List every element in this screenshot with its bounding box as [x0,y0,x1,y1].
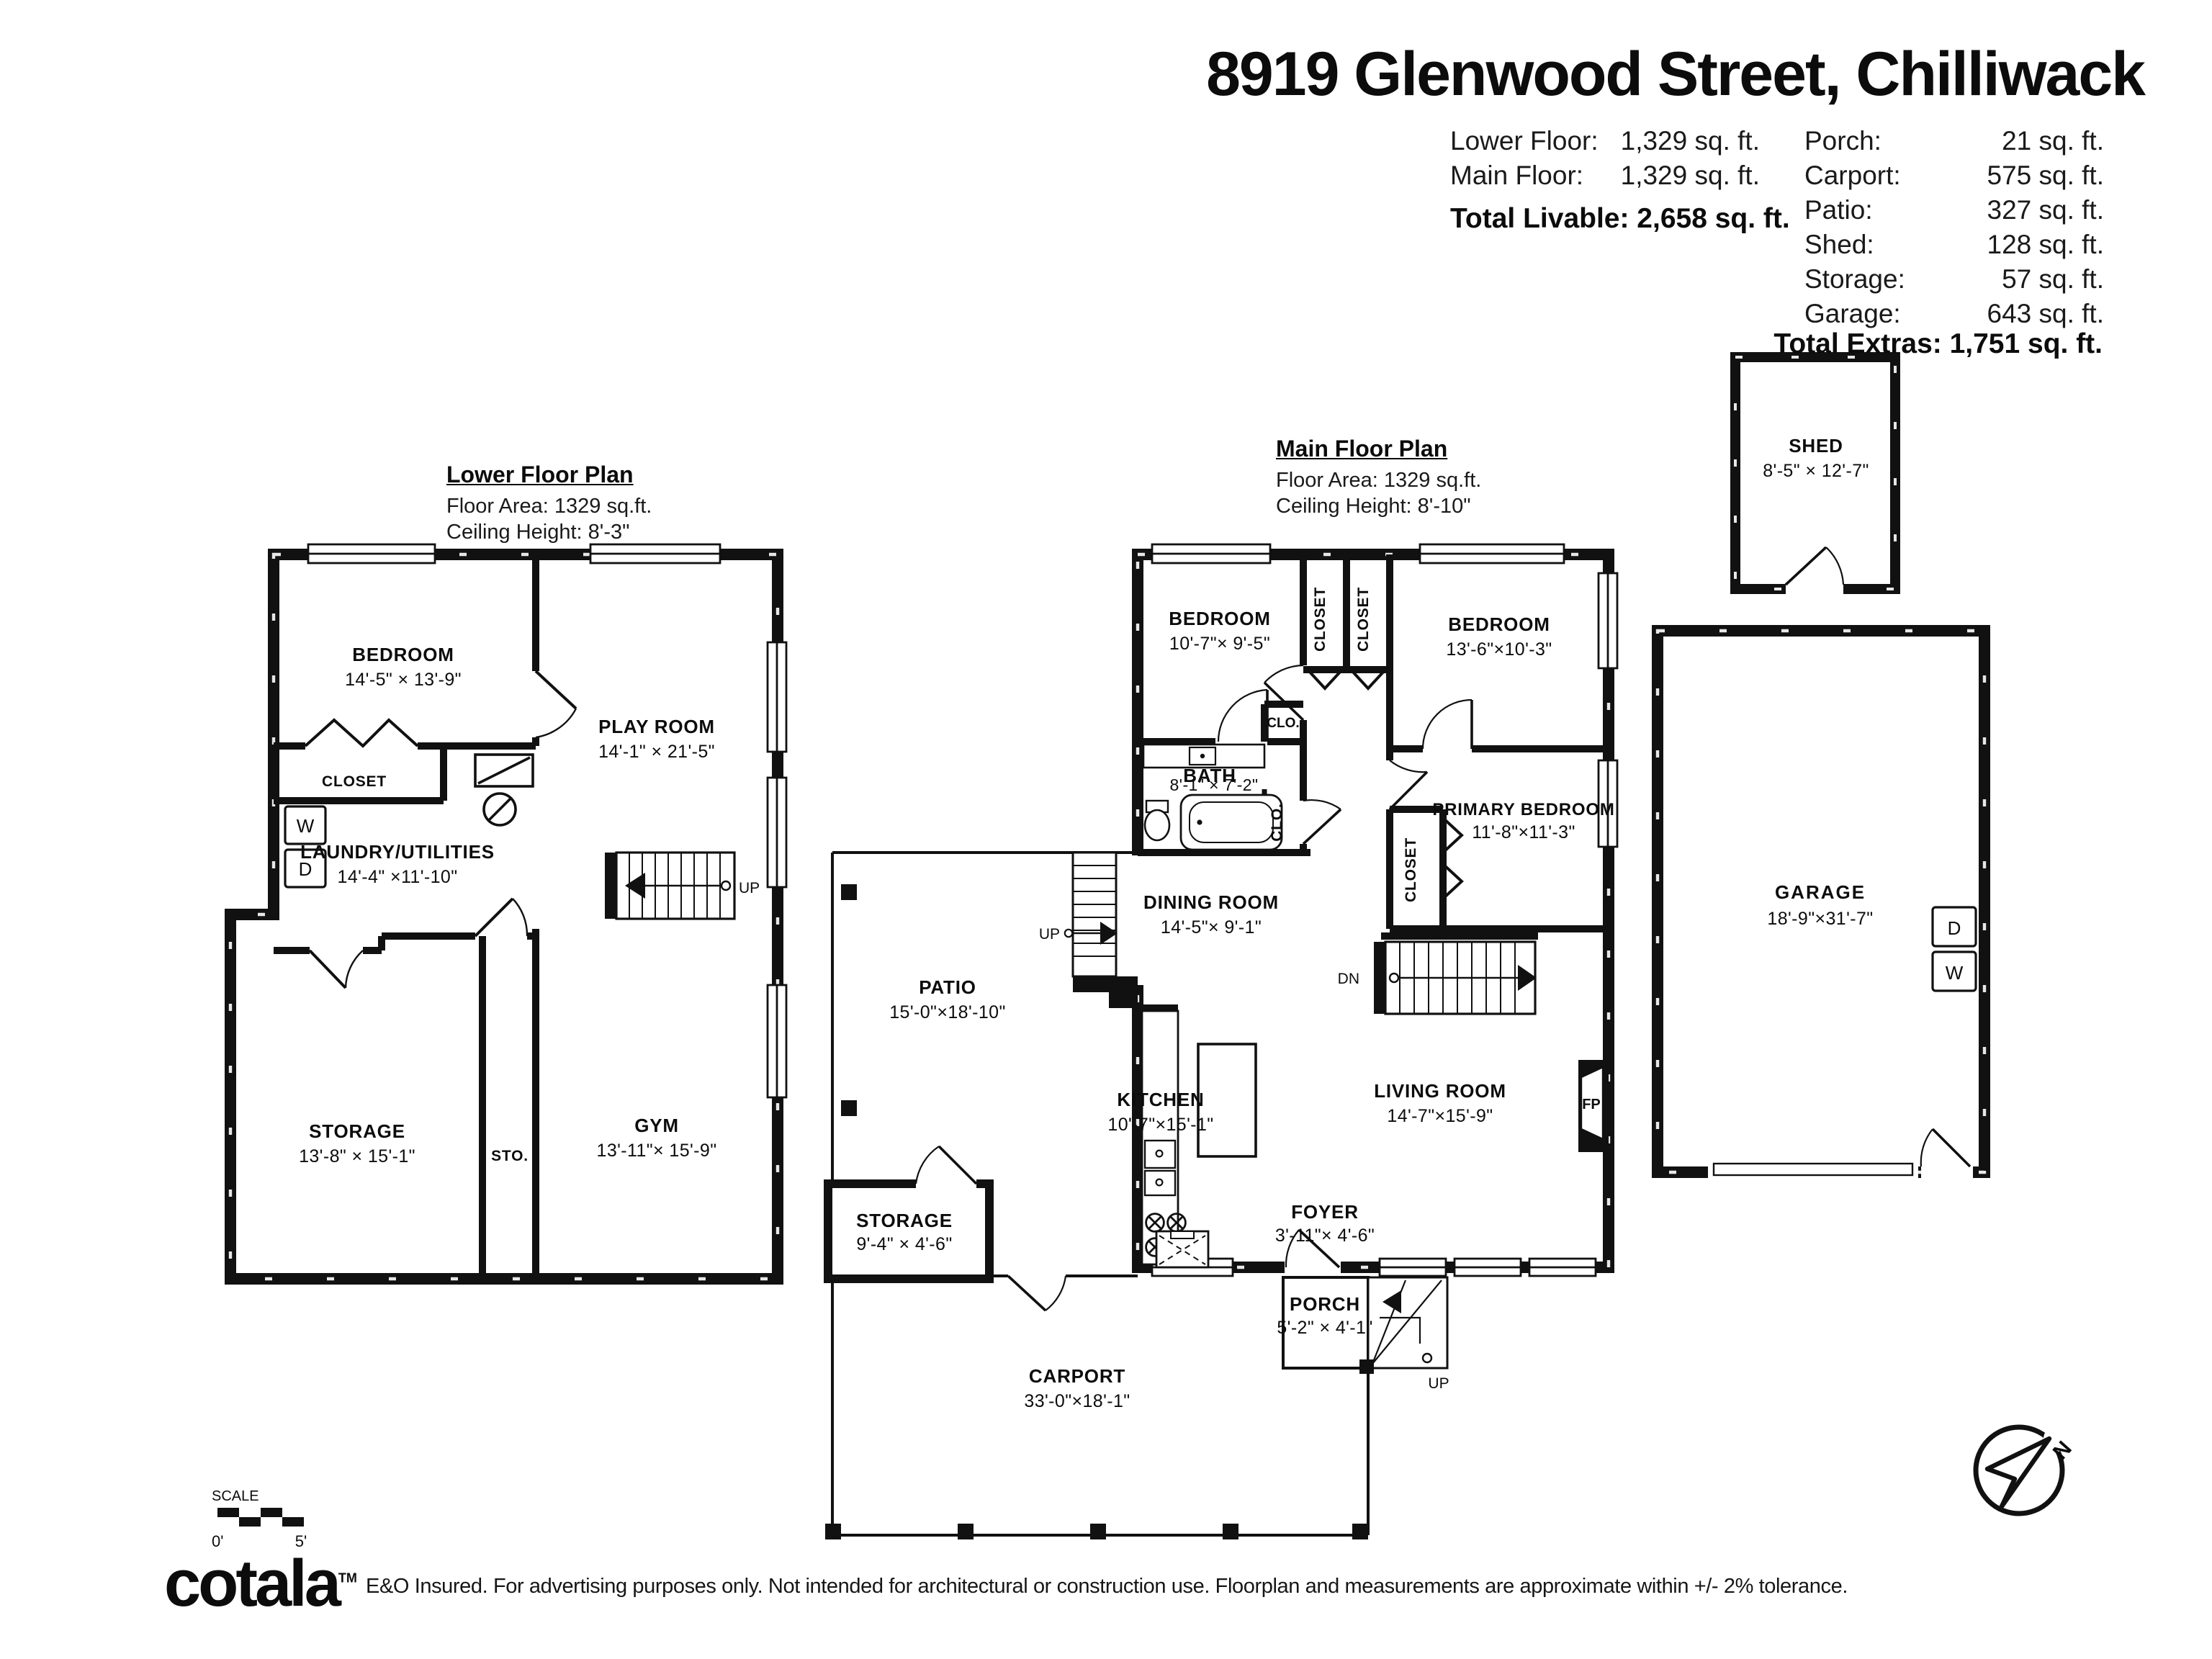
scale-bar: SCALE 0' 5' [212,1488,307,1550]
lower-laundry-label: LAUNDRY/UTILITIES [300,841,495,863]
water-heater-icon [484,793,516,825]
shed-label: SHED [1789,435,1843,457]
stat-row: Patio: 327 sq. ft. [1804,193,2104,228]
main-foyer-dims: 3'-11"× 4'-6" [1275,1226,1375,1246]
stat-value: 575 sq. ft. [1987,158,2105,193]
garage-plan: D W GARAGE 18'-9"×31'-7" [1658,631,1984,1181]
extras-stats: Porch: 21 sq. ft. Carport: 575 sq. ft. P… [1804,124,2104,331]
garage-label: GARAGE [1775,881,1866,903]
main-dining-dims: 14'-5"× 9'-1" [1161,917,1262,938]
stat-label: Porch: [1804,124,1881,158]
lower-bedroom-label: BEDROOM [352,644,454,665]
lower-bedroom-dims: 14'-5" × 13'-9" [345,670,462,690]
washer-label: W [297,815,315,837]
stat-label: Patio: [1804,193,1873,228]
main-bedroom2-dims: 13'-6"×10'-3" [1446,639,1552,660]
livable-stats: Lower Floor: 1,329 sq. ft. Main Floor: 1… [1450,124,1760,193]
main-bedroom2-label: BEDROOM [1448,613,1550,635]
lower-up-label: UP [739,880,760,896]
stat-value: 1,329 sq. ft. [1621,124,1760,158]
lower-gym-label: GYM [634,1115,679,1136]
lower-plan-ceiling: Ceiling Height: 8'-3" [446,520,652,546]
stat-value: 643 sq. ft. [1987,297,2105,331]
lower-plan: BEDROOM 14'-5" × 13'-9" PLAY ROOM 14'-1"… [230,544,786,1279]
main-up-patio-label: UP [1039,926,1060,943]
main-bath-dims2: 8'-1" × 7'-2" [1169,775,1258,794]
lower-stairs [605,853,734,919]
stat-row: Storage: 57 sq. ft. [1804,262,2104,297]
stat-label: Lower Floor: [1450,124,1599,158]
lower-laundry-dims: 14'-4" ×11'-10" [338,867,458,887]
main-primary-label: PRIMARY BEDROOM [1432,800,1614,819]
compass-icon: N [1976,1426,2077,1514]
main-dining-label: DINING ROOM [1143,891,1279,913]
stat-row: Porch: 21 sq. ft. [1804,124,2104,158]
main-patio-dims: 15'-0"×18'-10" [889,1002,1005,1022]
total-livable: Total Livable: 2,658 sq. ft. [1450,203,1790,236]
main-living-dims: 14'-7"×15'-9" [1387,1106,1493,1126]
stat-value: 128 sq. ft. [1987,228,2105,262]
main-porch-label: PORCH [1290,1293,1360,1315]
main-clo2-label: CLO. [1269,803,1285,841]
lower-gym-dims: 13'-11"× 15'-9" [597,1141,717,1161]
main-bedroom1-label: BEDROOM [1169,608,1270,629]
lower-plan-area: Floor Area: 1329 sq.ft. [446,494,652,520]
disclaimer-text: E&O Insured. For advertising purposes on… [366,1575,1848,1599]
main-patio-label: PATIO [919,976,976,998]
main-storage-dims: 9'-4" × 4'-6" [856,1234,952,1254]
main-closet2-label: CLOSET [1355,587,1372,652]
shed-dims: 8'-5" × 12'-7" [1763,461,1869,481]
main-porch-dims: 5'-2" × 4'-1" [1277,1318,1372,1338]
stat-row: Shed: 128 sq. ft. [1804,228,2104,262]
main-primary-dims: 11'-8"×11'-3" [1472,822,1575,842]
main-plan-title: Main Floor Plan [1276,438,1481,464]
stat-value: 327 sq. ft. [1987,193,2105,228]
main-living-label: LIVING ROOM [1374,1080,1506,1102]
main-kitchen-label: KITCHEN [1117,1089,1204,1110]
cotala-logo: cotalaTM [164,1544,357,1622]
stat-label: Shed: [1804,228,1874,262]
lower-closet-label: CLOSET [322,773,387,790]
garage-washer-label: W [1946,962,1964,984]
dryer-label: D [299,858,313,880]
main-bedroom1-dims: 10'-7"× 9'-5" [1169,634,1270,654]
main-plan-area: Floor Area: 1329 sq.ft. [1276,468,1481,494]
main-plan-heading: Main Floor Plan Floor Area: 1329 sq.ft. … [1276,438,1481,520]
lower-playroom-label: PLAY ROOM [598,716,715,737]
lower-plan-title: Lower Floor Plan [446,464,652,490]
main-plan-ceiling: Ceiling Height: 8'-10" [1276,494,1481,520]
main-foyer-label: FOYER [1291,1201,1359,1223]
shed-plan: SHED 8'-5" × 12'-7" [1735,357,1895,598]
garage-dims: 18'-9"×31'-7" [1767,909,1873,929]
lower-playroom-dims: 14'-1" × 21'-5" [598,742,715,762]
stat-row: Main Floor: 1,329 sq. ft. [1450,158,1760,193]
stat-value: 21 sq. ft. [2002,124,2104,158]
stat-label: Main Floor: [1450,158,1583,193]
main-up-porch-label: UP [1428,1375,1449,1392]
lower-storage-label: STORAGE [309,1120,405,1142]
main-fp-label: FP [1582,1097,1601,1112]
main-kitchen-dims: 10'-7"×15'-1" [1107,1115,1213,1135]
main-clo1-label: CLO. [1267,716,1299,731]
stat-label: Garage: [1804,297,1901,331]
main-plan: BEDROOM 10'-7"× 9'-5" CLOSET CLOSET BEDR… [825,544,1617,1539]
main-closet1-label: CLOSET [1312,587,1328,652]
logo-tm: TM [338,1570,357,1585]
patio-stairs [1065,853,1138,992]
stat-row: Carport: 575 sq. ft. [1804,158,2104,193]
main-primary-closet-label: CLOSET [1403,837,1419,902]
total-extras: Total Extras: 1,751 sq. ft. [1773,328,2103,361]
lower-storage-dims: 13'-8" × 15'-1" [299,1146,415,1166]
stat-value: 57 sq. ft. [2002,262,2104,297]
stat-label: Storage: [1804,262,1905,297]
stat-value: 1,329 sq. ft. [1621,158,1760,193]
page-title: 8919 Glenwood Street, Chilliwack [1206,40,2144,111]
scale-label: SCALE [212,1488,259,1504]
floorplan-page: BEDROOM 14'-5" × 13'-9" PLAY ROOM 14'-1"… [0,0,2212,1659]
main-carport-label: CARPORT [1029,1365,1125,1387]
logo-text: cotala [164,1545,338,1620]
lower-sto-label: STO. [491,1148,529,1164]
main-carport-dims: 33'-0"×18'-1" [1024,1391,1130,1411]
lower-plan-heading: Lower Floor Plan Floor Area: 1329 sq.ft.… [446,464,652,546]
main-stairs-dn [1374,942,1537,1014]
main-storage-label: STORAGE [856,1210,953,1231]
utility-panel-icon [475,755,533,786]
stat-row: Garage: 643 sq. ft. [1804,297,2104,331]
stat-label: Carport: [1804,158,1901,193]
main-dn-label: DN [1338,971,1359,987]
stat-row: Lower Floor: 1,329 sq. ft. [1450,124,1760,158]
garage-dryer-label: D [1948,917,1961,939]
